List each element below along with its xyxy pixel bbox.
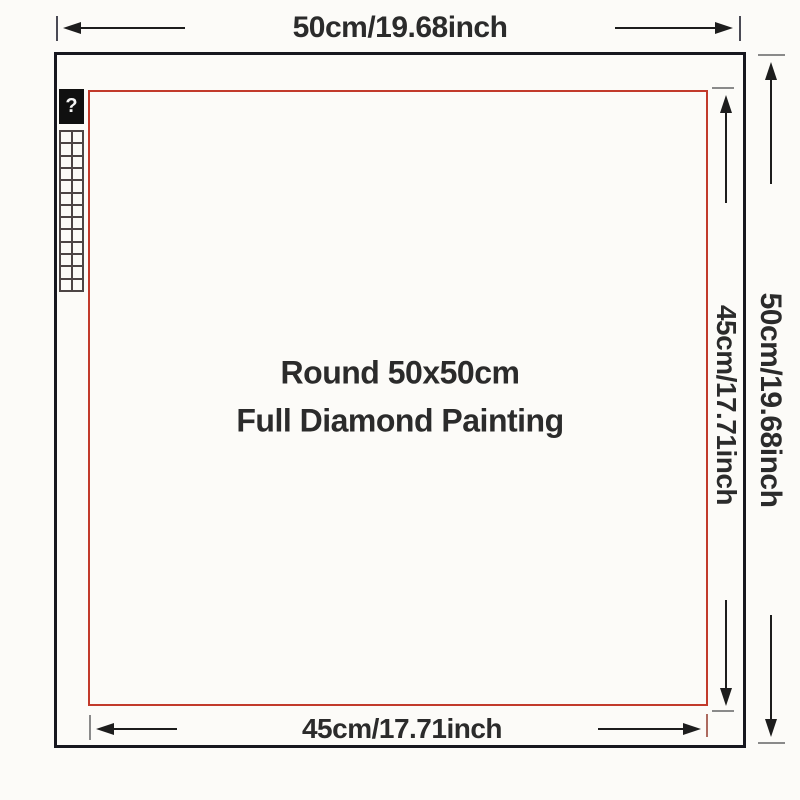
bottom-dimension-right-line — [598, 728, 683, 730]
legend-cell — [72, 156, 84, 168]
painting-area-border — [88, 90, 708, 706]
legend-cell — [60, 205, 72, 217]
legend-cell — [72, 131, 84, 143]
legend-cell — [72, 266, 84, 278]
legend-cell — [72, 205, 84, 217]
legend-cell — [60, 168, 72, 180]
legend-cell — [72, 217, 84, 229]
down-arrowhead-icon — [765, 719, 777, 737]
outer-height-bottom-tick — [758, 742, 785, 744]
right-arrowhead-icon — [683, 723, 701, 735]
question-mark-symbol: ? — [65, 95, 77, 118]
outer-height-top-tick — [758, 54, 785, 56]
bottom-dimension-right-tick — [706, 714, 708, 737]
legend-cell — [72, 180, 84, 192]
top-dimension-right-line — [615, 27, 717, 29]
outer-height-bottom-line — [770, 615, 772, 719]
top-dimension-label: 50cm/19.68inch — [293, 11, 508, 45]
inner-height-dimension-label: 45cm/17.71inch — [710, 305, 742, 505]
bottom-dimension-label: 45cm/17.71inch — [302, 713, 502, 745]
legend-cell — [72, 193, 84, 205]
legend-cell — [72, 143, 84, 155]
outer-height-dimension-label: 50cm/19.68inch — [753, 293, 787, 508]
legend-cell — [60, 254, 72, 266]
diamond-painting-size-diagram: ? 50cm/19.68inch Round 50x50cm Full Diam… — [0, 0, 800, 800]
product-title-line1: Round 50x50cm — [281, 355, 520, 392]
down-arrowhead-icon — [720, 688, 732, 706]
top-dimension-right-tick — [739, 16, 741, 41]
legend-cell — [60, 217, 72, 229]
legend-cell — [60, 156, 72, 168]
right-arrowhead-icon — [715, 22, 733, 34]
top-dimension-left-line — [79, 27, 185, 29]
bottom-dimension-left-line — [112, 728, 177, 730]
color-legend-grid — [59, 130, 84, 292]
legend-cell — [60, 143, 72, 155]
legend-cell — [60, 131, 72, 143]
inner-height-top-tick — [712, 87, 734, 89]
legend-cell — [60, 180, 72, 192]
legend-cell — [72, 229, 84, 241]
legend-cell — [60, 266, 72, 278]
legend-symbol-box: ? — [59, 89, 84, 124]
inner-height-top-line — [725, 111, 727, 203]
legend-cell — [60, 242, 72, 254]
legend-cell — [72, 168, 84, 180]
inner-height-bottom-tick — [712, 710, 734, 712]
top-dimension-left-tick — [56, 16, 58, 41]
legend-cell — [60, 193, 72, 205]
legend-cell — [60, 279, 72, 291]
legend-cell — [72, 279, 84, 291]
legend-cell — [60, 229, 72, 241]
product-title-line2: Full Diamond Painting — [236, 403, 563, 440]
inner-height-bottom-line — [725, 600, 727, 688]
legend-cell — [72, 254, 84, 266]
bottom-dimension-left-tick — [89, 715, 91, 740]
outer-height-top-line — [770, 78, 772, 184]
legend-cell — [72, 242, 84, 254]
